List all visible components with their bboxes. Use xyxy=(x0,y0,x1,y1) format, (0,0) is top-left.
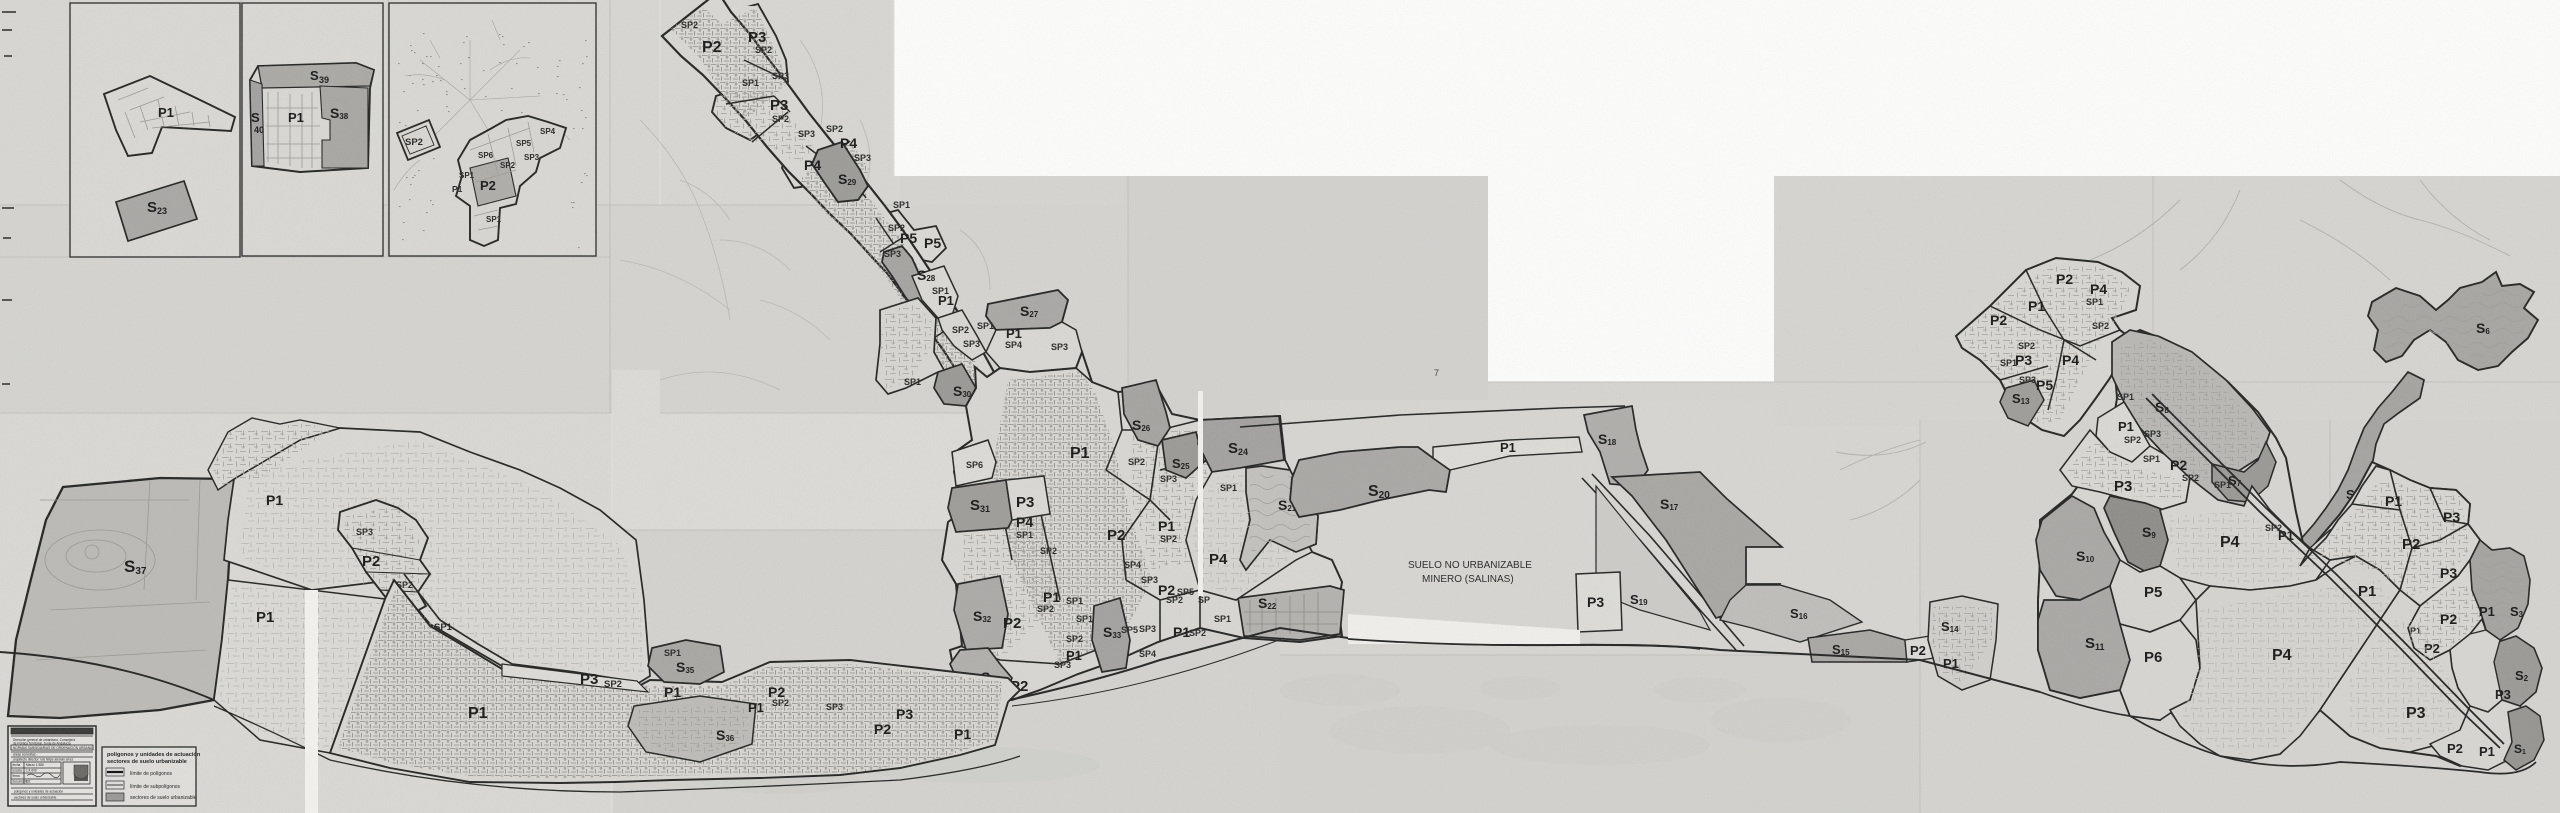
svg-text:SP1: SP1 xyxy=(434,622,453,633)
svg-text:SP2: SP2 xyxy=(1066,634,1083,644)
svg-text:SP3: SP3 xyxy=(1141,575,1158,585)
svg-text:SP2: SP2 xyxy=(604,679,622,690)
svg-text:NORMAS SUBSIDIARIAS DE ORDENAC: NORMAS SUBSIDIARIAS DE ORDENACIÓN URBANA xyxy=(13,745,93,750)
svg-text:SP3: SP3 xyxy=(854,153,871,163)
svg-text:sectores de suelo urbanizable: sectores de suelo urbanizable xyxy=(107,759,187,765)
svg-text:SP3: SP3 xyxy=(524,153,540,162)
svg-text:SP6: SP6 xyxy=(478,151,494,160)
svg-text:SP3: SP3 xyxy=(2144,429,2161,439)
svg-text:P2: P2 xyxy=(2056,271,2073,287)
svg-text:SP3: SP3 xyxy=(1051,342,1068,352)
svg-text:límite de subpolígonos: límite de subpolígonos xyxy=(130,784,181,790)
svg-text:P2: P2 xyxy=(1990,312,2007,328)
svg-text:SP3: SP3 xyxy=(356,527,373,537)
svg-text:P3: P3 xyxy=(1587,594,1604,610)
svg-text:P3: P3 xyxy=(1016,494,1034,511)
svg-text:sectores de suelo urbanizable: sectores de suelo urbanizable xyxy=(14,796,57,800)
svg-text:P6: P6 xyxy=(2144,649,2162,666)
svg-text:Marzo 1.986: Marzo 1.986 xyxy=(26,763,44,767)
svg-text:SP2: SP2 xyxy=(1160,534,1177,544)
svg-text:SP2: SP2 xyxy=(500,161,516,170)
svg-text:1:4.000: 1:4.000 xyxy=(26,769,37,773)
svg-text:SP1: SP1 xyxy=(664,648,681,658)
svg-text:P4: P4 xyxy=(804,157,821,173)
svg-text:1/2: 1/2 xyxy=(26,780,31,784)
svg-text:P1: P1 xyxy=(2118,419,2134,434)
svg-text:P4: P4 xyxy=(2090,281,2107,297)
svg-text:P4: P4 xyxy=(1016,514,1033,530)
svg-text:39: 39 xyxy=(319,75,329,85)
svg-text:S: S xyxy=(251,110,260,125)
svg-text:P3: P3 xyxy=(2015,352,2032,368)
svg-text:P3: P3 xyxy=(580,671,598,688)
svg-text:P2: P2 xyxy=(2170,457,2187,473)
svg-text:P3: P3 xyxy=(2406,705,2426,722)
svg-text:SUELO NO URBANIZABLE: SUELO NO URBANIZABLE xyxy=(1408,560,1532,571)
svg-text:P5: P5 xyxy=(924,235,941,251)
svg-text:SP1: SP1 xyxy=(904,377,921,387)
svg-text:P1: P1 xyxy=(452,184,463,194)
svg-text:P5: P5 xyxy=(2036,377,2053,393)
svg-text:P1: P1 xyxy=(468,705,488,722)
svg-text:SP1: SP1 xyxy=(486,215,502,224)
svg-text:SP1: SP1 xyxy=(1214,614,1231,624)
svg-text:SP3: SP3 xyxy=(2019,375,2036,385)
svg-text:P4: P4 xyxy=(2062,352,2079,368)
svg-text:límite de polígonos: límite de polígonos xyxy=(130,771,172,777)
svg-text:SP1: SP1 xyxy=(1220,483,1237,493)
svg-text:P1: P1 xyxy=(1070,445,1090,462)
svg-text:SP2: SP2 xyxy=(772,114,789,124)
svg-text:40: 40 xyxy=(254,125,264,135)
svg-text:P1: P1 xyxy=(954,726,971,742)
svg-text:7: 7 xyxy=(1434,368,1439,378)
svg-text:SP2: SP2 xyxy=(952,325,969,335)
svg-text:P1: P1 xyxy=(2385,493,2402,509)
svg-text:P5: P5 xyxy=(2144,584,2162,601)
svg-text:P2: P2 xyxy=(2402,536,2420,553)
svg-text:P1: P1 xyxy=(1158,518,1175,534)
svg-text:P3: P3 xyxy=(2443,509,2460,525)
svg-text:SP2: SP2 xyxy=(755,45,772,55)
svg-text:SP2: SP2 xyxy=(772,698,789,708)
svg-text:P1: P1 xyxy=(266,492,283,508)
svg-text:SP2: SP2 xyxy=(1128,457,1145,467)
svg-text:escala: escala xyxy=(13,769,22,773)
svg-text:P2: P2 xyxy=(362,553,380,570)
svg-text:SP4: SP4 xyxy=(540,127,556,136)
svg-text:P2: P2 xyxy=(480,178,496,193)
svg-text:de Política Territorial. Junta: de Política Territorial. Junta de Andalu… xyxy=(13,742,71,746)
svg-text:SP6: SP6 xyxy=(966,460,983,470)
svg-text:P1: P1 xyxy=(1500,440,1516,455)
svg-text:SP2: SP2 xyxy=(1037,604,1054,614)
svg-text:SP1: SP1 xyxy=(2086,297,2103,307)
svg-text:P3: P3 xyxy=(770,97,788,114)
svg-text:SP2: SP2 xyxy=(2124,435,2141,445)
svg-text:P2: P2 xyxy=(1107,527,1125,544)
svg-text:SP3: SP3 xyxy=(963,339,980,349)
svg-text:SP1: SP1 xyxy=(977,321,994,331)
svg-text:P1: P1 xyxy=(1173,624,1190,640)
svg-text:P4: P4 xyxy=(1209,551,1228,568)
svg-text:P3: P3 xyxy=(2114,478,2132,495)
svg-text:P1: P1 xyxy=(158,105,174,120)
svg-text:P1: P1 xyxy=(2028,298,2045,314)
svg-text:SP2: SP2 xyxy=(2092,321,2109,331)
svg-text:SP: SP xyxy=(1198,595,1210,605)
svg-text:SP4: SP4 xyxy=(1005,340,1022,350)
svg-text:SP1: SP1 xyxy=(2143,454,2160,464)
svg-text:P3: P3 xyxy=(748,29,766,46)
svg-text:SP2: SP2 xyxy=(826,124,843,134)
svg-text:P4: P4 xyxy=(2220,534,2240,551)
svg-text:SP1: SP1 xyxy=(1066,596,1083,606)
svg-text:P1: P1 xyxy=(664,684,681,700)
svg-text:SP3: SP3 xyxy=(1054,660,1071,670)
svg-text:SP2: SP2 xyxy=(1040,546,1057,556)
svg-text:P1: P1 xyxy=(2358,583,2376,600)
svg-text:SP2: SP2 xyxy=(681,20,698,30)
svg-text:P1: P1 xyxy=(2479,744,2495,759)
svg-text:P1: P1 xyxy=(1043,589,1060,605)
svg-text:SP5: SP5 xyxy=(516,139,532,148)
svg-text:SP2: SP2 xyxy=(1166,595,1183,605)
svg-text:P4: P4 xyxy=(840,135,857,151)
svg-text:SP2: SP2 xyxy=(405,137,423,148)
svg-text:P2: P2 xyxy=(2447,741,2463,756)
svg-text:sectores de suelo urbanizable: sectores de suelo urbanizable xyxy=(130,795,197,801)
svg-text:P1: P1 xyxy=(748,700,764,715)
svg-text:P1: P1 xyxy=(2479,604,2495,619)
svg-text:SP3: SP3 xyxy=(884,249,901,259)
svg-text:P4: P4 xyxy=(2272,647,2292,664)
svg-text:S: S xyxy=(310,68,319,83)
svg-text:P2: P2 xyxy=(1910,643,1926,658)
svg-text:SP4: SP4 xyxy=(1139,649,1156,659)
svg-text:SP3: SP3 xyxy=(826,702,843,712)
svg-text:polígonos y unidades de actuac: polígonos y unidades de actuación xyxy=(107,752,201,758)
svg-text:SP1: SP1 xyxy=(742,78,759,88)
svg-text:P1: P1 xyxy=(1006,326,1022,341)
svg-text:áreas consultas.-: áreas consultas.- xyxy=(13,753,37,757)
svg-text:P3: P3 xyxy=(896,706,913,722)
svg-text:SP1: SP1 xyxy=(1076,614,1093,624)
svg-text:P1: P1 xyxy=(288,110,304,125)
svg-text:SP1: SP1 xyxy=(1016,530,1033,540)
svg-text:SP2: SP2 xyxy=(1189,628,1206,638)
svg-text:SP1: SP1 xyxy=(2117,392,2134,402)
svg-text:SP1: SP1 xyxy=(459,171,475,180)
svg-text:fecha: fecha xyxy=(13,763,21,767)
svg-text:SP3: SP3 xyxy=(1160,474,1177,484)
svg-text:MINERO (SALINAS): MINERO (SALINAS) xyxy=(1422,574,1514,585)
svg-text:SP3: SP3 xyxy=(798,129,815,139)
svg-text:P2: P2 xyxy=(2440,611,2457,627)
svg-text:P2: P2 xyxy=(1003,615,1021,632)
svg-text:SP1: SP1 xyxy=(893,200,910,210)
svg-text:SP3: SP3 xyxy=(1139,624,1156,634)
svg-text:SP2: SP2 xyxy=(2018,341,2035,351)
svg-text:P5: P5 xyxy=(900,230,917,246)
svg-text:polígonos y unidades de actuac: polígonos y unidades de actuación xyxy=(14,790,63,794)
svg-text:SP4: SP4 xyxy=(1124,560,1141,570)
svg-text:P2: P2 xyxy=(874,721,891,737)
svg-text:firma: firma xyxy=(13,774,20,778)
svg-text:SP5: SP5 xyxy=(1121,625,1138,635)
svg-text:P2: P2 xyxy=(702,39,722,56)
svg-text:arquitecto director: luis feli: arquitecto director: luis felipe alemán … xyxy=(13,758,73,762)
svg-text:P1: P1 xyxy=(256,609,274,626)
svg-text:SP3: SP3 xyxy=(772,71,789,81)
svg-text:P1: P1 xyxy=(938,293,954,308)
